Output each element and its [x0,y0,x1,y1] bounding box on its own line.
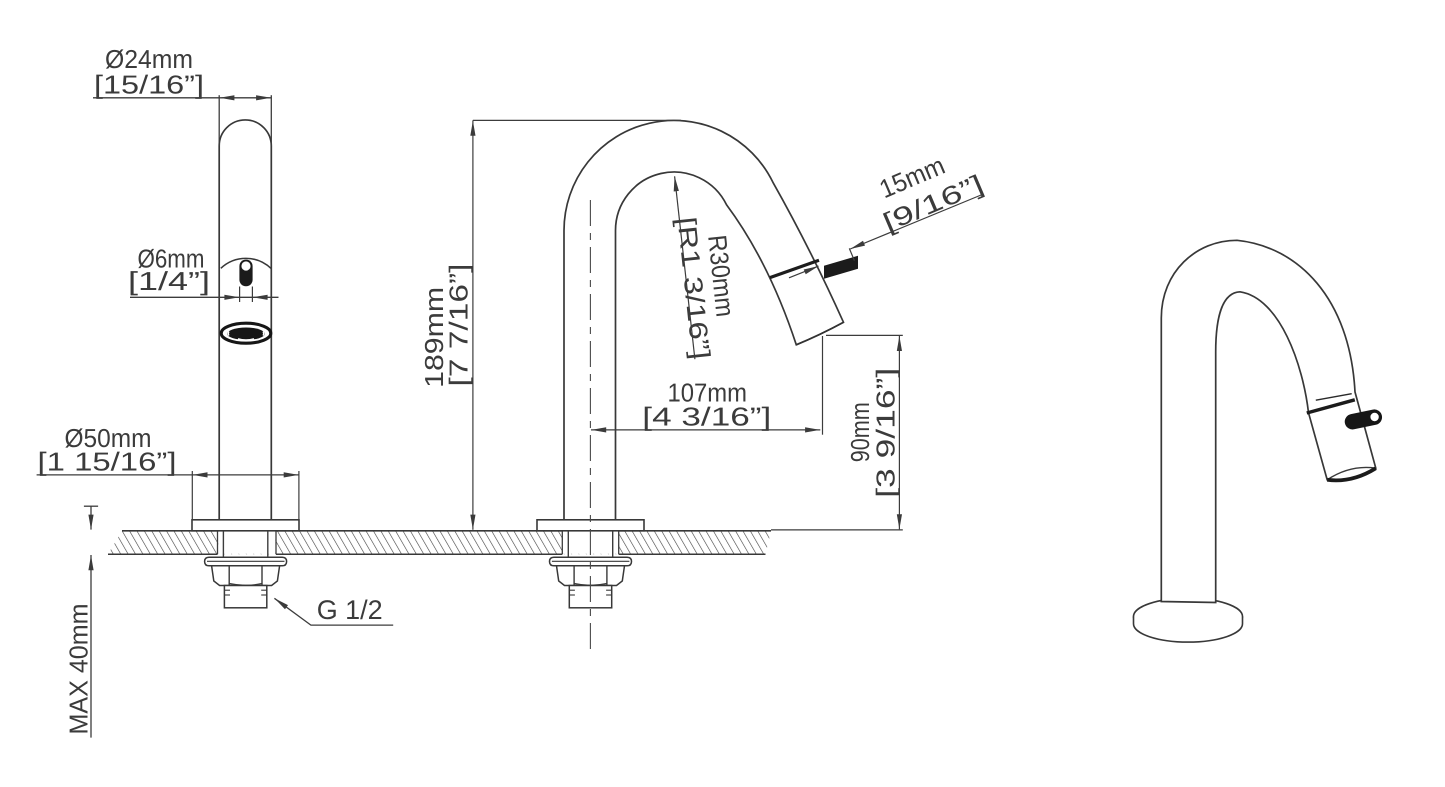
svg-text:[1/4”]: [1/4”] [128,266,210,296]
svg-text:[4 3/16”]: [4 3/16”] [642,402,771,432]
svg-text:G 1/2: G 1/2 [317,595,383,625]
svg-text:[15/16”]: [15/16”] [94,70,204,100]
svg-text:[7 7/16”]: [7 7/16”] [444,264,474,387]
svg-text:MAX 40mm: MAX 40mm [64,604,94,735]
svg-text:[1 15/16”]: [1 15/16”] [38,446,177,476]
svg-text:[3 9/16”]: [3 9/16”] [870,368,900,498]
